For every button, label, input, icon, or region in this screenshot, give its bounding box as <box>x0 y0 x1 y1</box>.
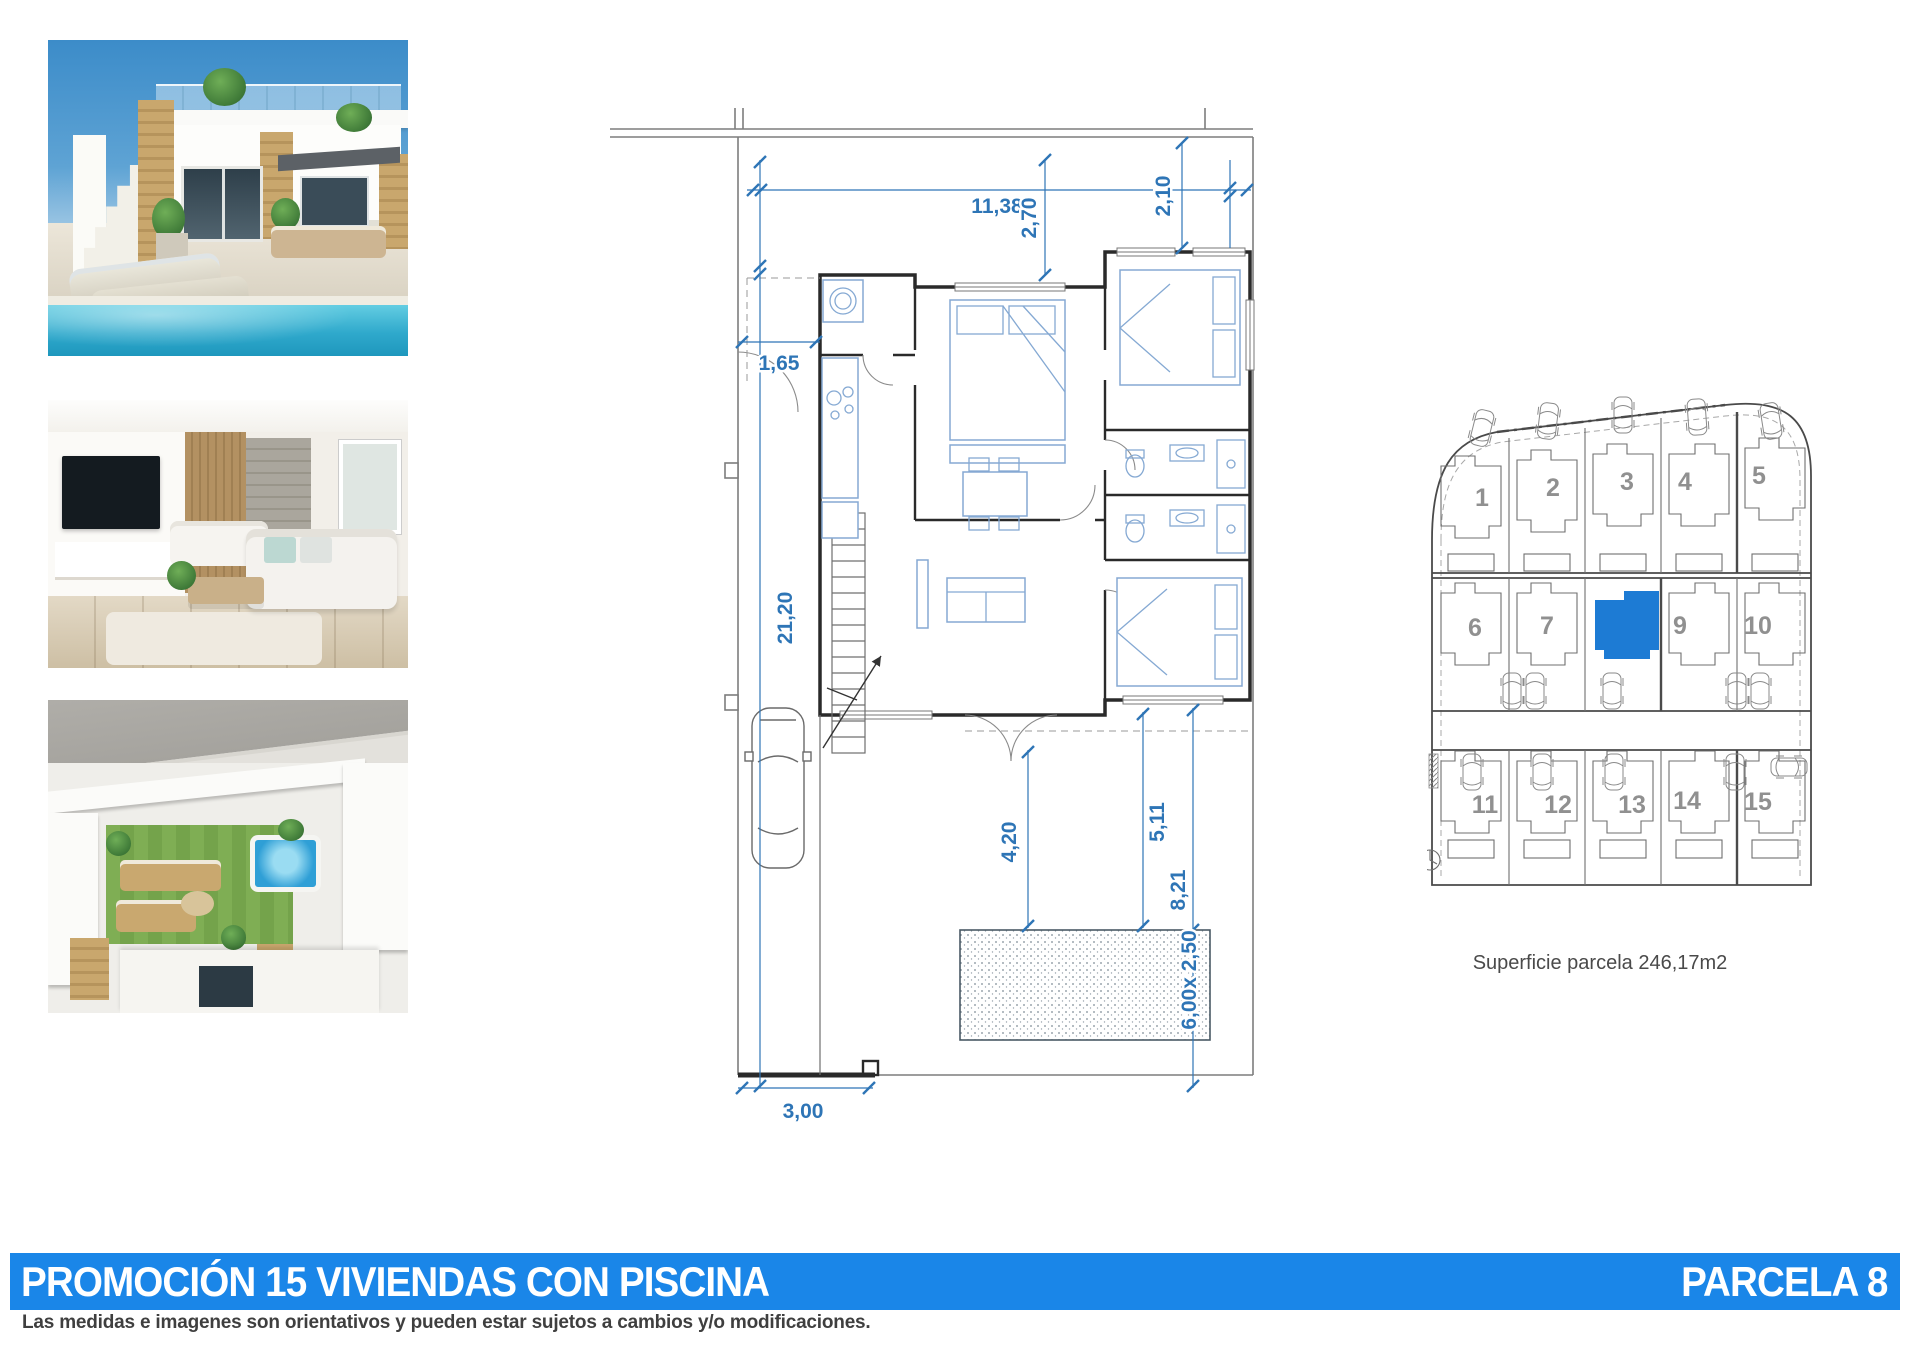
pool <box>960 930 1210 1040</box>
tv-screen <box>62 456 159 528</box>
dim-side-passage: 1,65 <box>759 352 800 375</box>
photo-roof-terraces <box>48 700 408 1013</box>
dim-porch-depth: 2,70 <box>1018 198 1041 239</box>
highlighted-parcel-8[interactable] <box>1595 591 1659 659</box>
pool-edge <box>48 296 408 305</box>
indoor-plant <box>167 561 196 590</box>
garage-door <box>738 1061 878 1075</box>
parcel-number: 4 <box>1678 468 1692 496</box>
furniture <box>822 270 1245 686</box>
brochure-page: 11,38 2,70 2,10 1,65 21,20 4,20 5,11 8,2… <box>0 0 1920 1356</box>
parcel-number: 6 <box>1468 614 1482 642</box>
dim-total-depth: 21,20 <box>774 592 797 645</box>
parcel-number: 10 <box>1744 612 1772 640</box>
parcel-number: 9 <box>1673 612 1687 640</box>
terrace-plant <box>278 819 303 841</box>
parcel-number: 11 <box>1472 791 1499 819</box>
sliding-glass-door <box>181 166 263 242</box>
window <box>199 966 253 1007</box>
dim-garden-depth: 8,21 <box>1167 869 1190 910</box>
doors <box>738 352 1137 761</box>
parcel-number: 14 <box>1673 787 1701 815</box>
parcel-number: 1 <box>1475 484 1489 512</box>
parcel-number: 5 <box>1752 462 1766 490</box>
coffee-table <box>188 577 264 604</box>
dim-entry-bay: 2,10 <box>1152 176 1175 217</box>
parapet-wall <box>343 763 408 951</box>
tv-cabinet <box>55 542 174 577</box>
parcel-area-caption: Superficie parcela 246,17m2 <box>1440 952 1760 975</box>
car-icon <box>745 708 811 868</box>
ceiling <box>48 400 408 432</box>
roof-plant <box>336 103 372 131</box>
parcel-number: 13 <box>1618 791 1646 819</box>
patio-plant <box>271 198 300 230</box>
disclaimer-text: Las medidas e imagenes son orientativos … <box>22 1312 871 1334</box>
rattan-sofa <box>120 860 221 891</box>
parcel-number: 2 <box>1546 474 1560 502</box>
footer-title-bar: PROMOCIÓN 15 VIVIENDAS CON PISCINA PARCE… <box>10 1253 1900 1310</box>
parcel-number: 7 <box>1540 612 1554 640</box>
cushion <box>300 537 332 564</box>
hot-tub <box>250 835 321 892</box>
parcel-number: 15 <box>1744 788 1772 816</box>
floor-plan: 11,38 2,70 2,10 1,65 21,20 4,20 5,11 8,2… <box>595 100 1265 1130</box>
promotion-title: PROMOCIÓN 15 VIVIENDAS CON PISCINA <box>10 1258 769 1306</box>
dim-pool-to-house: 5,11 <box>1146 802 1169 842</box>
swimming-pool <box>48 305 408 356</box>
round-table <box>181 891 213 916</box>
parcel-number: 12 <box>1544 791 1572 819</box>
photo-villa-exterior <box>48 40 408 356</box>
stone-pillar <box>70 938 110 1001</box>
dim-total-width: 11,38 <box>971 195 1023 218</box>
dim-terrace-depth: 4,20 <box>998 822 1021 863</box>
parcel-number: 3 <box>1620 468 1634 496</box>
dim-pool-size: 6,00x 2,50 <box>1178 930 1201 1029</box>
wall-art <box>339 440 401 534</box>
dim-garage-door: 3,00 <box>783 1100 824 1123</box>
parcel-label: PARCELA 8 <box>1681 1258 1900 1306</box>
site-plan: 1 2 3 4 5 6 7 9 10 11 12 13 14 15 <box>1427 388 1817 900</box>
rug <box>106 612 322 666</box>
outdoor-sofa <box>271 226 386 258</box>
photo-living-room <box>48 400 408 668</box>
window <box>300 176 369 227</box>
cushion <box>264 537 296 564</box>
